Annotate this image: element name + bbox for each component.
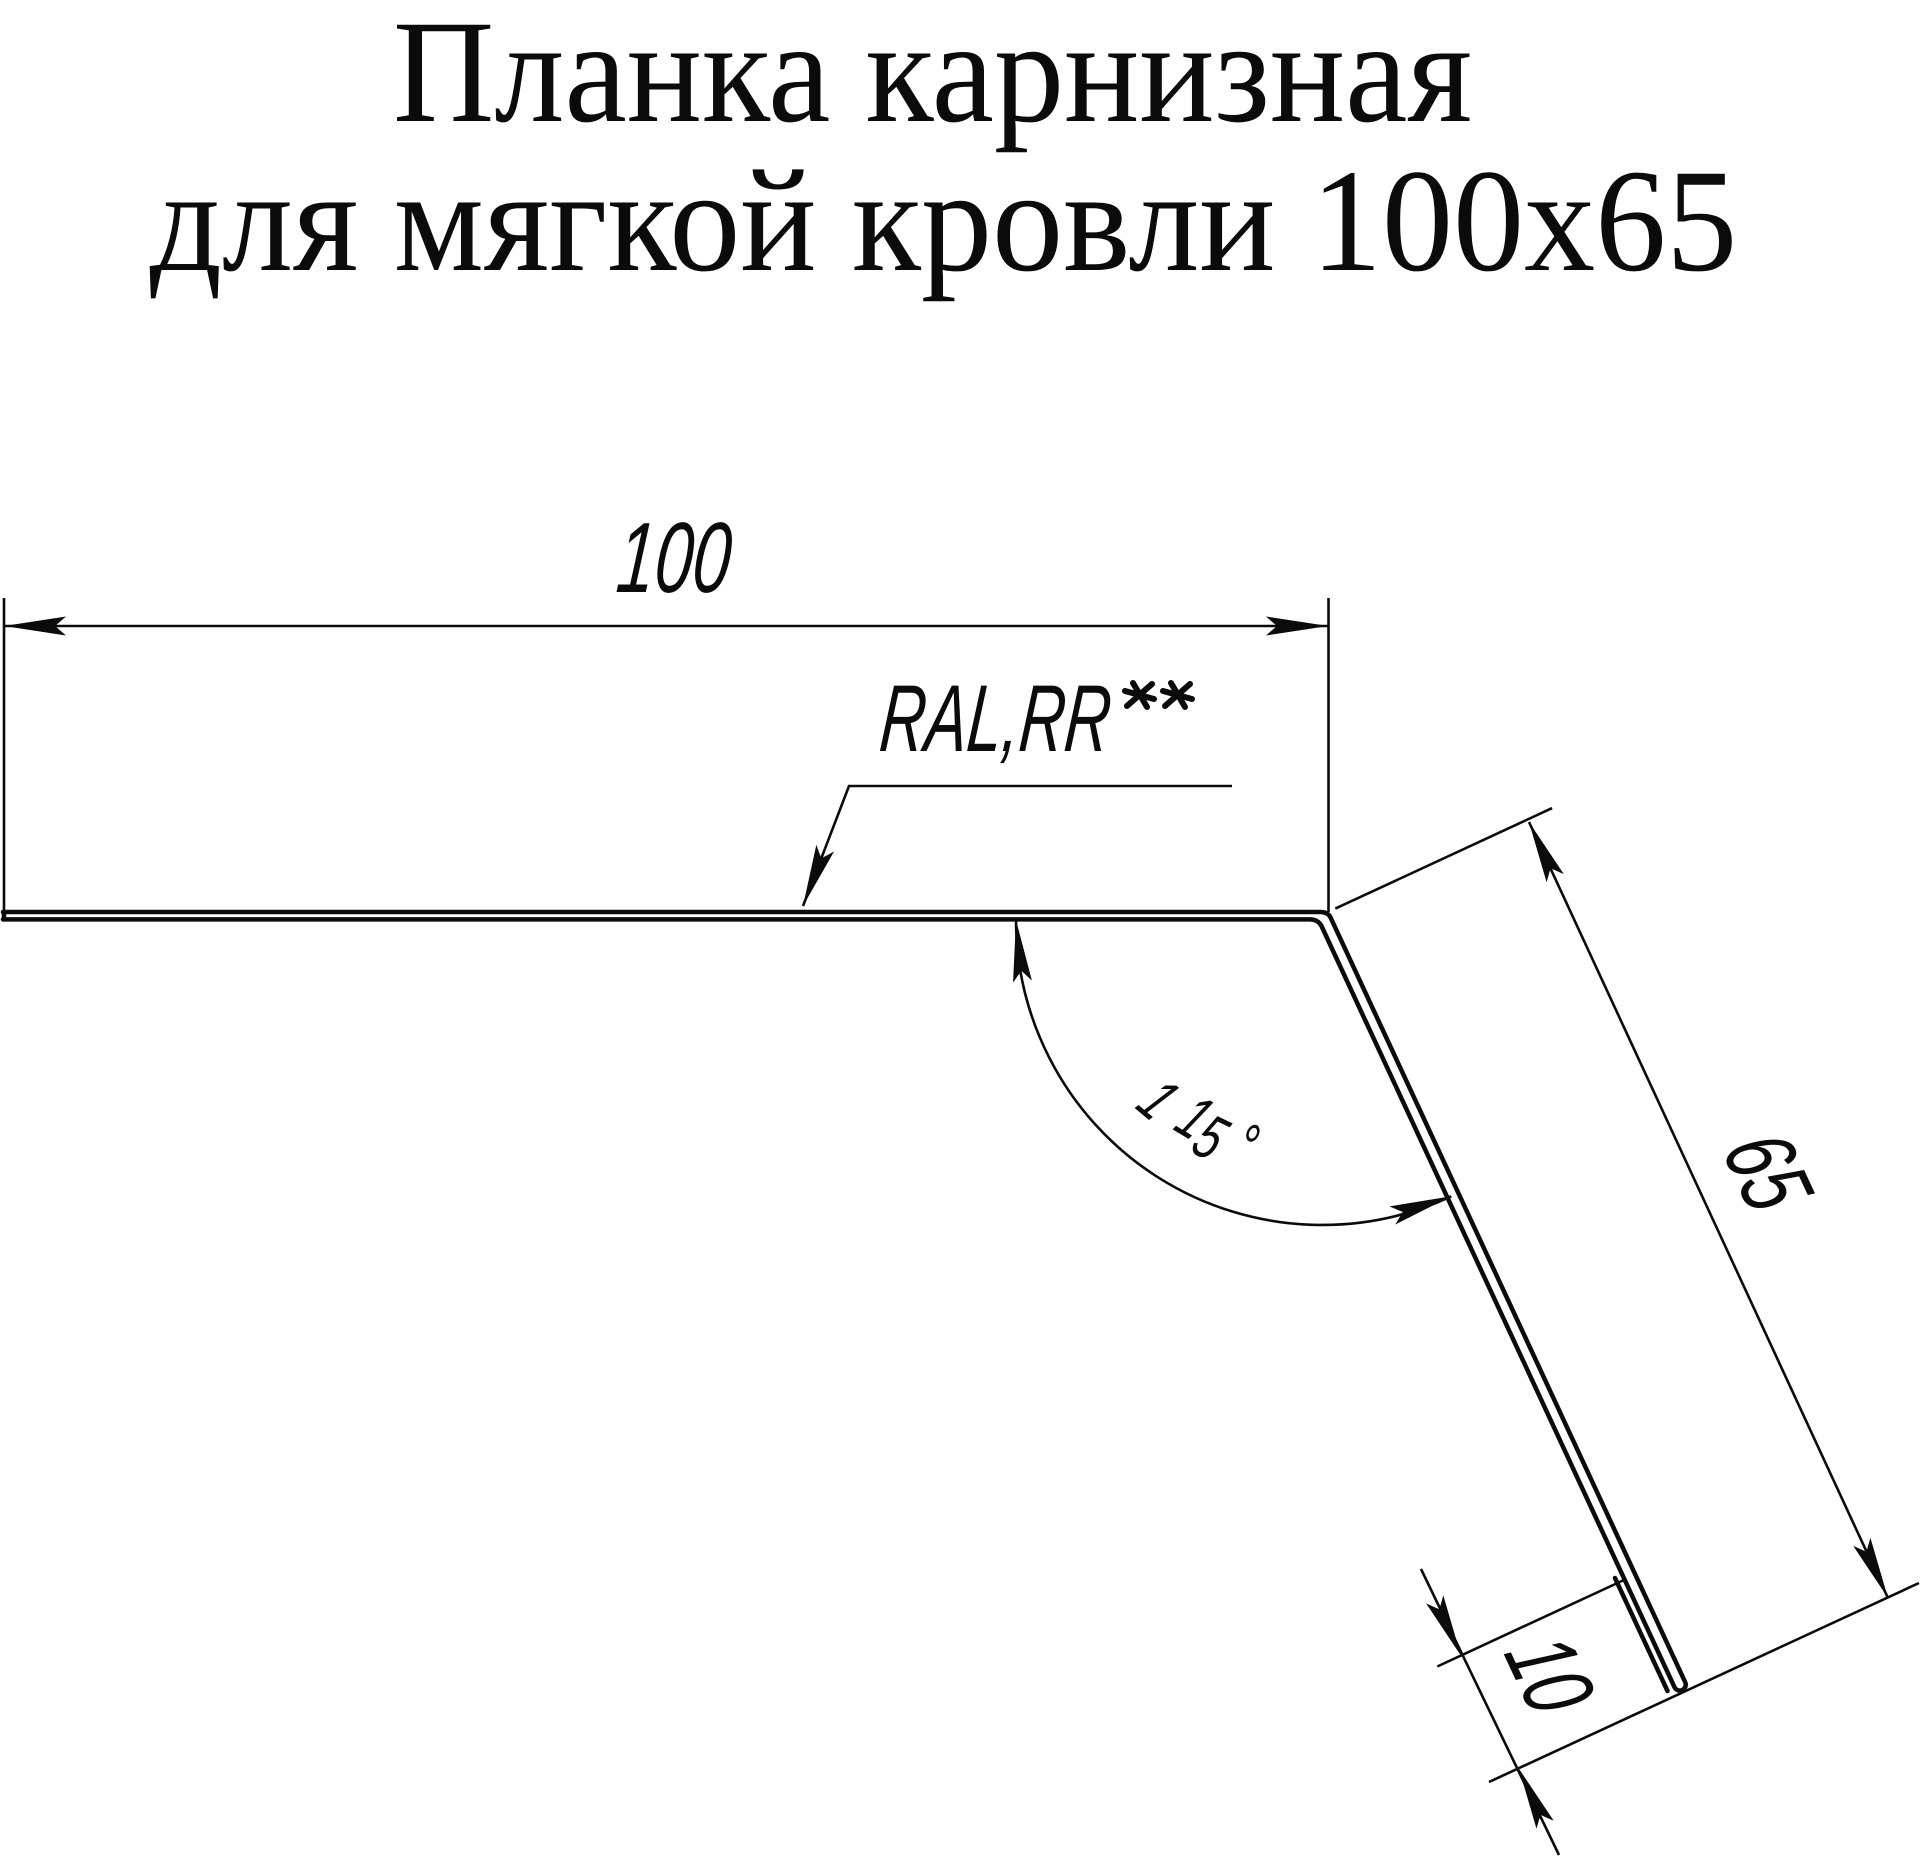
svg-text:для мягкой кровли 100х65: для мягкой кровли 100х65 bbox=[150, 140, 1738, 303]
svg-text:RAL,RR: RAL,RR bbox=[876, 666, 1115, 772]
svg-text:Планка карнизная: Планка карнизная bbox=[393, 0, 1472, 154]
svg-text:65: 65 bbox=[1701, 1120, 1835, 1224]
svg-text:100: 100 bbox=[613, 502, 736, 614]
svg-text:10: 10 bbox=[1483, 1623, 1616, 1727]
